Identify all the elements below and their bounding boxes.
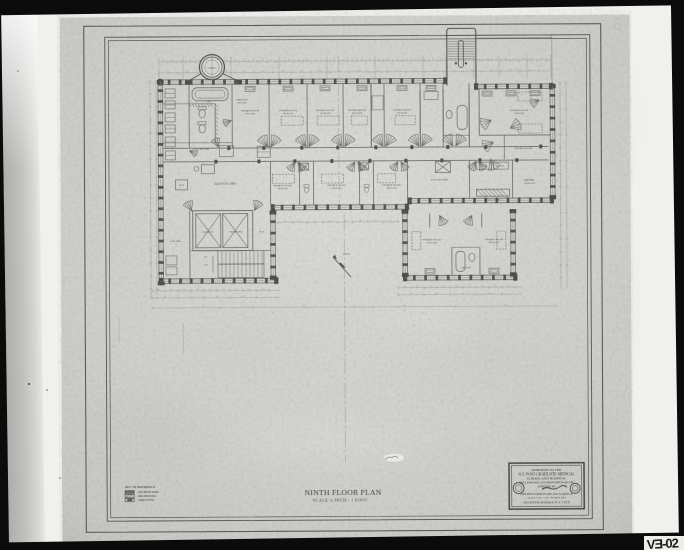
svg-text:9-4: 9-4 [490, 70, 492, 72]
svg-text:6-8: 6-8 [378, 59, 380, 61]
svg-text:PRIVATE ROOM: PRIVATE ROOM [514, 147, 532, 150]
svg-text:8-6: 8-6 [284, 221, 286, 223]
svg-text:10-2: 10-2 [509, 69, 512, 71]
svg-text:12-0: 12-0 [481, 286, 484, 288]
svg-text:9-4: 9-4 [248, 289, 250, 291]
svg-text:9TH FLOOR: 9TH FLOOR [514, 113, 525, 115]
svg-text:10-2: 10-2 [261, 289, 264, 291]
svg-text:8-6: 8-6 [297, 60, 299, 62]
svg-text:10-2: 10-2 [242, 296, 245, 298]
svg-text:10-2: 10-2 [189, 60, 192, 62]
svg-text:DIET KITCHEN: DIET KITCHEN [486, 200, 501, 202]
svg-text:8-6: 8-6 [202, 306, 204, 308]
svg-text:8-6: 8-6 [164, 296, 166, 298]
svg-text:12-0: 12-0 [435, 293, 438, 295]
svg-text:PRIVATE ROOM: PRIVATE ROOM [279, 109, 297, 112]
svg-text:8-6: 8-6 [452, 70, 454, 72]
svg-text:ADDITION TO THE: ADDITION TO THE [531, 468, 561, 472]
svg-text:PRIVATE ROOM: PRIVATE ROOM [316, 109, 334, 112]
svg-text:10-2: 10-2 [279, 60, 282, 62]
svg-text:NORTH: NORTH [343, 254, 351, 256]
svg-text:SCALE ¼ IN = 1 FT · MARCH 1922: SCALE ¼ IN = 1 FT · MARCH 1922 [528, 496, 567, 499]
svg-text:NINTH FLOOR PLAN over GARAGE: NINTH FLOOR PLAN over GARAGE [520, 492, 573, 496]
svg-text:10-2: 10-2 [442, 286, 445, 288]
svg-text:10-2: 10-2 [414, 70, 417, 72]
svg-text:12-0: 12-0 [281, 71, 284, 73]
svg-text:COAL WALL: COAL WALL [170, 240, 182, 243]
svg-text:8-6: 8-6 [387, 59, 389, 61]
svg-text:VƎ-02: VƎ-02 [646, 535, 679, 550]
svg-text:PASSENGER: PASSENGER [230, 231, 243, 234]
svg-text:ELEVATOR: ELEVATOR [203, 231, 214, 234]
svg-text:10-2: 10-2 [504, 58, 507, 60]
svg-text:9-4: 9-4 [404, 305, 406, 307]
svg-text:PRIVATE ROOM: PRIVATE ROOM [241, 109, 259, 112]
svg-text:8-6: 8-6 [359, 220, 361, 222]
svg-text:PRIVATE ROOM: PRIVATE ROOM [485, 238, 503, 241]
svg-text:9-4: 9-4 [216, 296, 218, 298]
svg-text:9-4: 9-4 [395, 70, 397, 72]
svg-text:9TH FLOOR: 9TH FLOOR [427, 242, 438, 244]
svg-text:PRIVATE ROOM: PRIVATE ROOM [393, 109, 411, 112]
svg-text:8-6: 8-6 [157, 289, 159, 291]
svg-text:8-6: 8-6 [477, 59, 479, 61]
svg-text:PRIVATE ROOM: PRIVATE ROOM [327, 184, 345, 187]
svg-text:9TH FLOOR: 9TH FLOOR [277, 188, 288, 190]
svg-text:8-6: 8-6 [403, 286, 405, 288]
svg-text:SCALE ¼ INCH - 1 FOOT: SCALE ¼ INCH - 1 FOOT [313, 497, 368, 502]
svg-text:10-2: 10-2 [369, 59, 372, 61]
svg-text:PRIVATE ROOM: PRIVATE ROOM [423, 238, 441, 241]
svg-text:NINTH FLOOR PLAN: NINTH FLOOR PLAN [305, 488, 382, 497]
svg-text:9TH FLOOR: 9TH FLOOR [352, 113, 363, 115]
svg-text:PANTRY: PANTRY [524, 179, 534, 182]
svg-text:FLUE: FLUE [259, 231, 265, 233]
svg-text:10-2: 10-2 [504, 304, 507, 306]
svg-text:6-8: 6-8 [423, 59, 425, 61]
svg-text:10-2: 10-2 [319, 70, 322, 72]
svg-text:6-8: 6-8 [513, 58, 515, 60]
svg-text:10-2: 10-2 [329, 220, 332, 222]
svg-text:6-8: 6-8 [243, 71, 245, 73]
svg-text:9TH FLOOR: 9TH FLOOR [245, 113, 256, 115]
svg-text:9-4: 9-4 [314, 220, 316, 222]
svg-text:12-0: 12-0 [486, 59, 489, 61]
svg-text:12-0: 12-0 [471, 70, 474, 72]
svg-text:12-0: 12-0 [302, 305, 305, 307]
svg-text:12-0: 12-0 [441, 59, 444, 61]
svg-text:9TH FLOOR: 9TH FLOOR [331, 188, 342, 190]
svg-text:NEW BRICK WORK: NEW BRICK WORK [138, 492, 159, 494]
svg-text:9-4: 9-4 [225, 60, 227, 62]
svg-text:12-0: 12-0 [261, 60, 264, 62]
svg-text:12-0: 12-0 [235, 289, 238, 291]
svg-text:10-2: 10-2 [196, 289, 199, 291]
svg-text:6-8: 6-8 [344, 220, 346, 222]
svg-text:12-0: 12-0 [351, 59, 354, 61]
svg-text:NO FLOOR: NO FLOOR [238, 102, 248, 104]
svg-text:LAVATORY: LAVATORY [236, 98, 248, 101]
svg-text:12-0: 12-0 [396, 59, 399, 61]
svg-text:PRIVATE ROOM: PRIVATE ROOM [510, 109, 528, 112]
svg-text:12-0: 12-0 [306, 59, 309, 61]
svg-text:9-4: 9-4 [315, 59, 317, 61]
svg-text:9TH FLOOR: 9TH FLOOR [386, 188, 397, 190]
svg-text:PRIVATE ROOM: PRIVATE ROOM [273, 184, 291, 187]
svg-text:12-0: 12-0 [190, 296, 193, 298]
svg-text:9-4: 9-4 [389, 220, 391, 222]
svg-text:8-6: 8-6 [522, 58, 524, 60]
svg-text:8-6: 8-6 [262, 71, 264, 73]
svg-text:8-6: 8-6 [222, 289, 224, 291]
svg-text:ELEVATOR LOBBY: ELEVATOR LOBBY [214, 183, 237, 186]
svg-text:BATH RM: BATH RM [461, 266, 470, 269]
svg-text:303 FIFTH AVENUE N.Y. CITY: 303 FIFTH AVENUE N.Y. CITY [523, 500, 570, 504]
svg-text:19 R: 19 R [204, 265, 209, 267]
svg-text:FLUE: FLUE [179, 185, 185, 187]
svg-text:CLOSET: CLOSET [480, 166, 488, 168]
svg-text:KEY TO MATERIALS: KEY TO MATERIALS [125, 485, 155, 489]
svg-text:9TH FLOOR: 9TH FLOOR [524, 183, 535, 185]
svg-text:9-4: 9-4 [495, 58, 497, 60]
svg-text:8-6: 8-6 [162, 60, 164, 62]
svg-text:9-4: 9-4 [494, 285, 496, 287]
svg-text:9TH FLOOR: 9TH FLOOR [283, 113, 294, 115]
svg-text:9-4: 9-4 [300, 71, 302, 73]
svg-text:6-8: 6-8 [433, 70, 435, 72]
svg-text:9-4: 9-4 [180, 60, 182, 62]
svg-text:10-2: 10-2 [414, 59, 417, 61]
svg-text:PRIVATE ROOM: PRIVATE ROOM [348, 109, 366, 112]
svg-text:9-4: 9-4 [462, 293, 464, 295]
svg-text:FOOD KITCHEN: FOOD KITCHEN [431, 179, 448, 181]
svg-text:6-8: 6-8 [209, 289, 211, 291]
svg-text:6-8: 6-8 [333, 59, 335, 61]
svg-text:9-4: 9-4 [360, 59, 362, 61]
svg-text:PRIVATE ROOM: PRIVATE ROOM [382, 184, 400, 187]
svg-text:8-6: 8-6 [342, 59, 344, 61]
svg-text:9TH FLOOR: 9TH FLOOR [397, 113, 408, 115]
svg-text:FIRE PROOFING: FIRE PROOFING [138, 496, 156, 498]
svg-text:TERRA COTTA: TERRA COTTA [138, 499, 154, 502]
svg-text:12-0: 12-0 [374, 220, 377, 222]
svg-text:8-6: 8-6 [468, 286, 470, 288]
svg-text:12-0: 12-0 [376, 70, 379, 72]
svg-text:9-4: 9-4 [429, 286, 431, 288]
svg-text:12-0: 12-0 [170, 289, 173, 291]
svg-text:12-0: 12-0 [171, 60, 174, 62]
svg-text:CLOSET: CLOSET [497, 166, 505, 168]
svg-text:BATH: BATH [206, 100, 212, 103]
svg-text:9-4: 9-4 [540, 58, 542, 60]
svg-text:8-6: 8-6 [432, 59, 434, 61]
svg-text:6-8: 6-8 [455, 286, 457, 288]
svg-text:12-0: 12-0 [531, 58, 534, 60]
svg-text:9-4: 9-4 [270, 60, 272, 62]
svg-text:WILLIAM WELLES BOSWORTH ARCHT: WILLIAM WELLES BOSWORTH ARCHT [520, 480, 574, 484]
svg-text:10-2: 10-2 [324, 59, 327, 61]
svg-text:12-0: 12-0 [299, 221, 302, 223]
svg-text:8-6: 8-6 [252, 60, 254, 62]
svg-text:6-8: 6-8 [528, 69, 530, 71]
svg-text:12-0: 12-0 [416, 286, 419, 288]
svg-text:10-2: 10-2 [234, 60, 237, 62]
svg-text:12-0: 12-0 [186, 71, 189, 73]
svg-text:8-6: 8-6 [167, 71, 169, 73]
svg-text:8-6: 8-6 [410, 293, 412, 295]
svg-text:CHIMNEY: CHIMNEY [207, 67, 217, 69]
svg-text:9-4: 9-4 [405, 59, 407, 61]
svg-text:8-6: 8-6 [357, 70, 359, 72]
svg-text:9-4: 9-4 [183, 289, 185, 291]
svg-text:9TH FLOOR: 9TH FLOOR [489, 242, 500, 244]
svg-text:ANTE RM: ANTE RM [200, 148, 210, 151]
svg-text:6-8: 6-8 [288, 60, 290, 62]
svg-text:6-8: 6-8 [243, 60, 245, 62]
svg-text:10-2: 10-2 [507, 285, 510, 287]
svg-text:10-2: 10-2 [487, 293, 490, 295]
svg-text:9TH FLOOR: 9TH FLOOR [320, 113, 331, 115]
